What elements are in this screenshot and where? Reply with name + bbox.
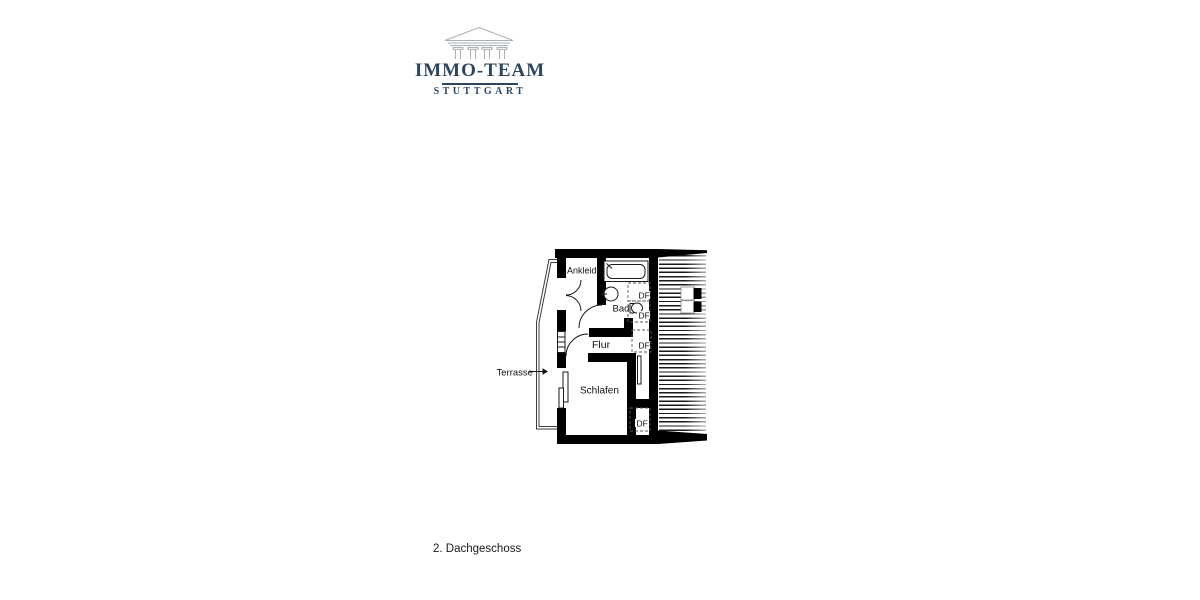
door-arc-schlafen (566, 334, 588, 356)
wall-stub (624, 318, 633, 328)
floor-plan: Ankleide Bad Flur Schlafen Terrasse DF D… (0, 0, 1200, 600)
wall-niche (628, 399, 653, 408)
windows (558, 332, 569, 409)
roof-window-label-2: DF (639, 311, 650, 321)
door-arc-terrace-lower (566, 296, 581, 312)
door-arc-bad (579, 305, 602, 328)
wall-flur-north (589, 328, 633, 337)
roof-window-label-4: DF (637, 419, 648, 429)
wall-left-2 (557, 310, 566, 331)
room-label-bad: Bad (613, 304, 630, 315)
wall-top (555, 249, 658, 258)
wall-left-1 (557, 258, 566, 278)
floor-caption: 2. Dachgeschoss (433, 543, 521, 555)
roof-window-label-3: DF (639, 341, 650, 351)
niche-rail (638, 356, 642, 384)
wall-bottom (557, 435, 658, 444)
wall-left-4 (557, 408, 566, 435)
room-label-schlafen: Schlafen (580, 386, 619, 397)
door-arc-terrace-upper (566, 280, 581, 295)
room-label-ankleide: Ankleide (567, 266, 602, 276)
roof-window-label-1: DF (639, 291, 650, 301)
roof-bottom-edge (658, 431, 707, 445)
terrace-outline (537, 260, 558, 430)
wall-schlafen-east (627, 353, 636, 435)
wall-left-3 (557, 353, 566, 368)
window-schlafen-b (559, 388, 564, 408)
page: IMMO-TEAM STUTTGART (0, 0, 1200, 600)
roof-top-edge (658, 249, 707, 258)
room-label-terrasse: Terrasse (497, 368, 533, 379)
roof-dormer-blocks (681, 287, 702, 313)
room-label-flur: Flur (592, 339, 611, 351)
